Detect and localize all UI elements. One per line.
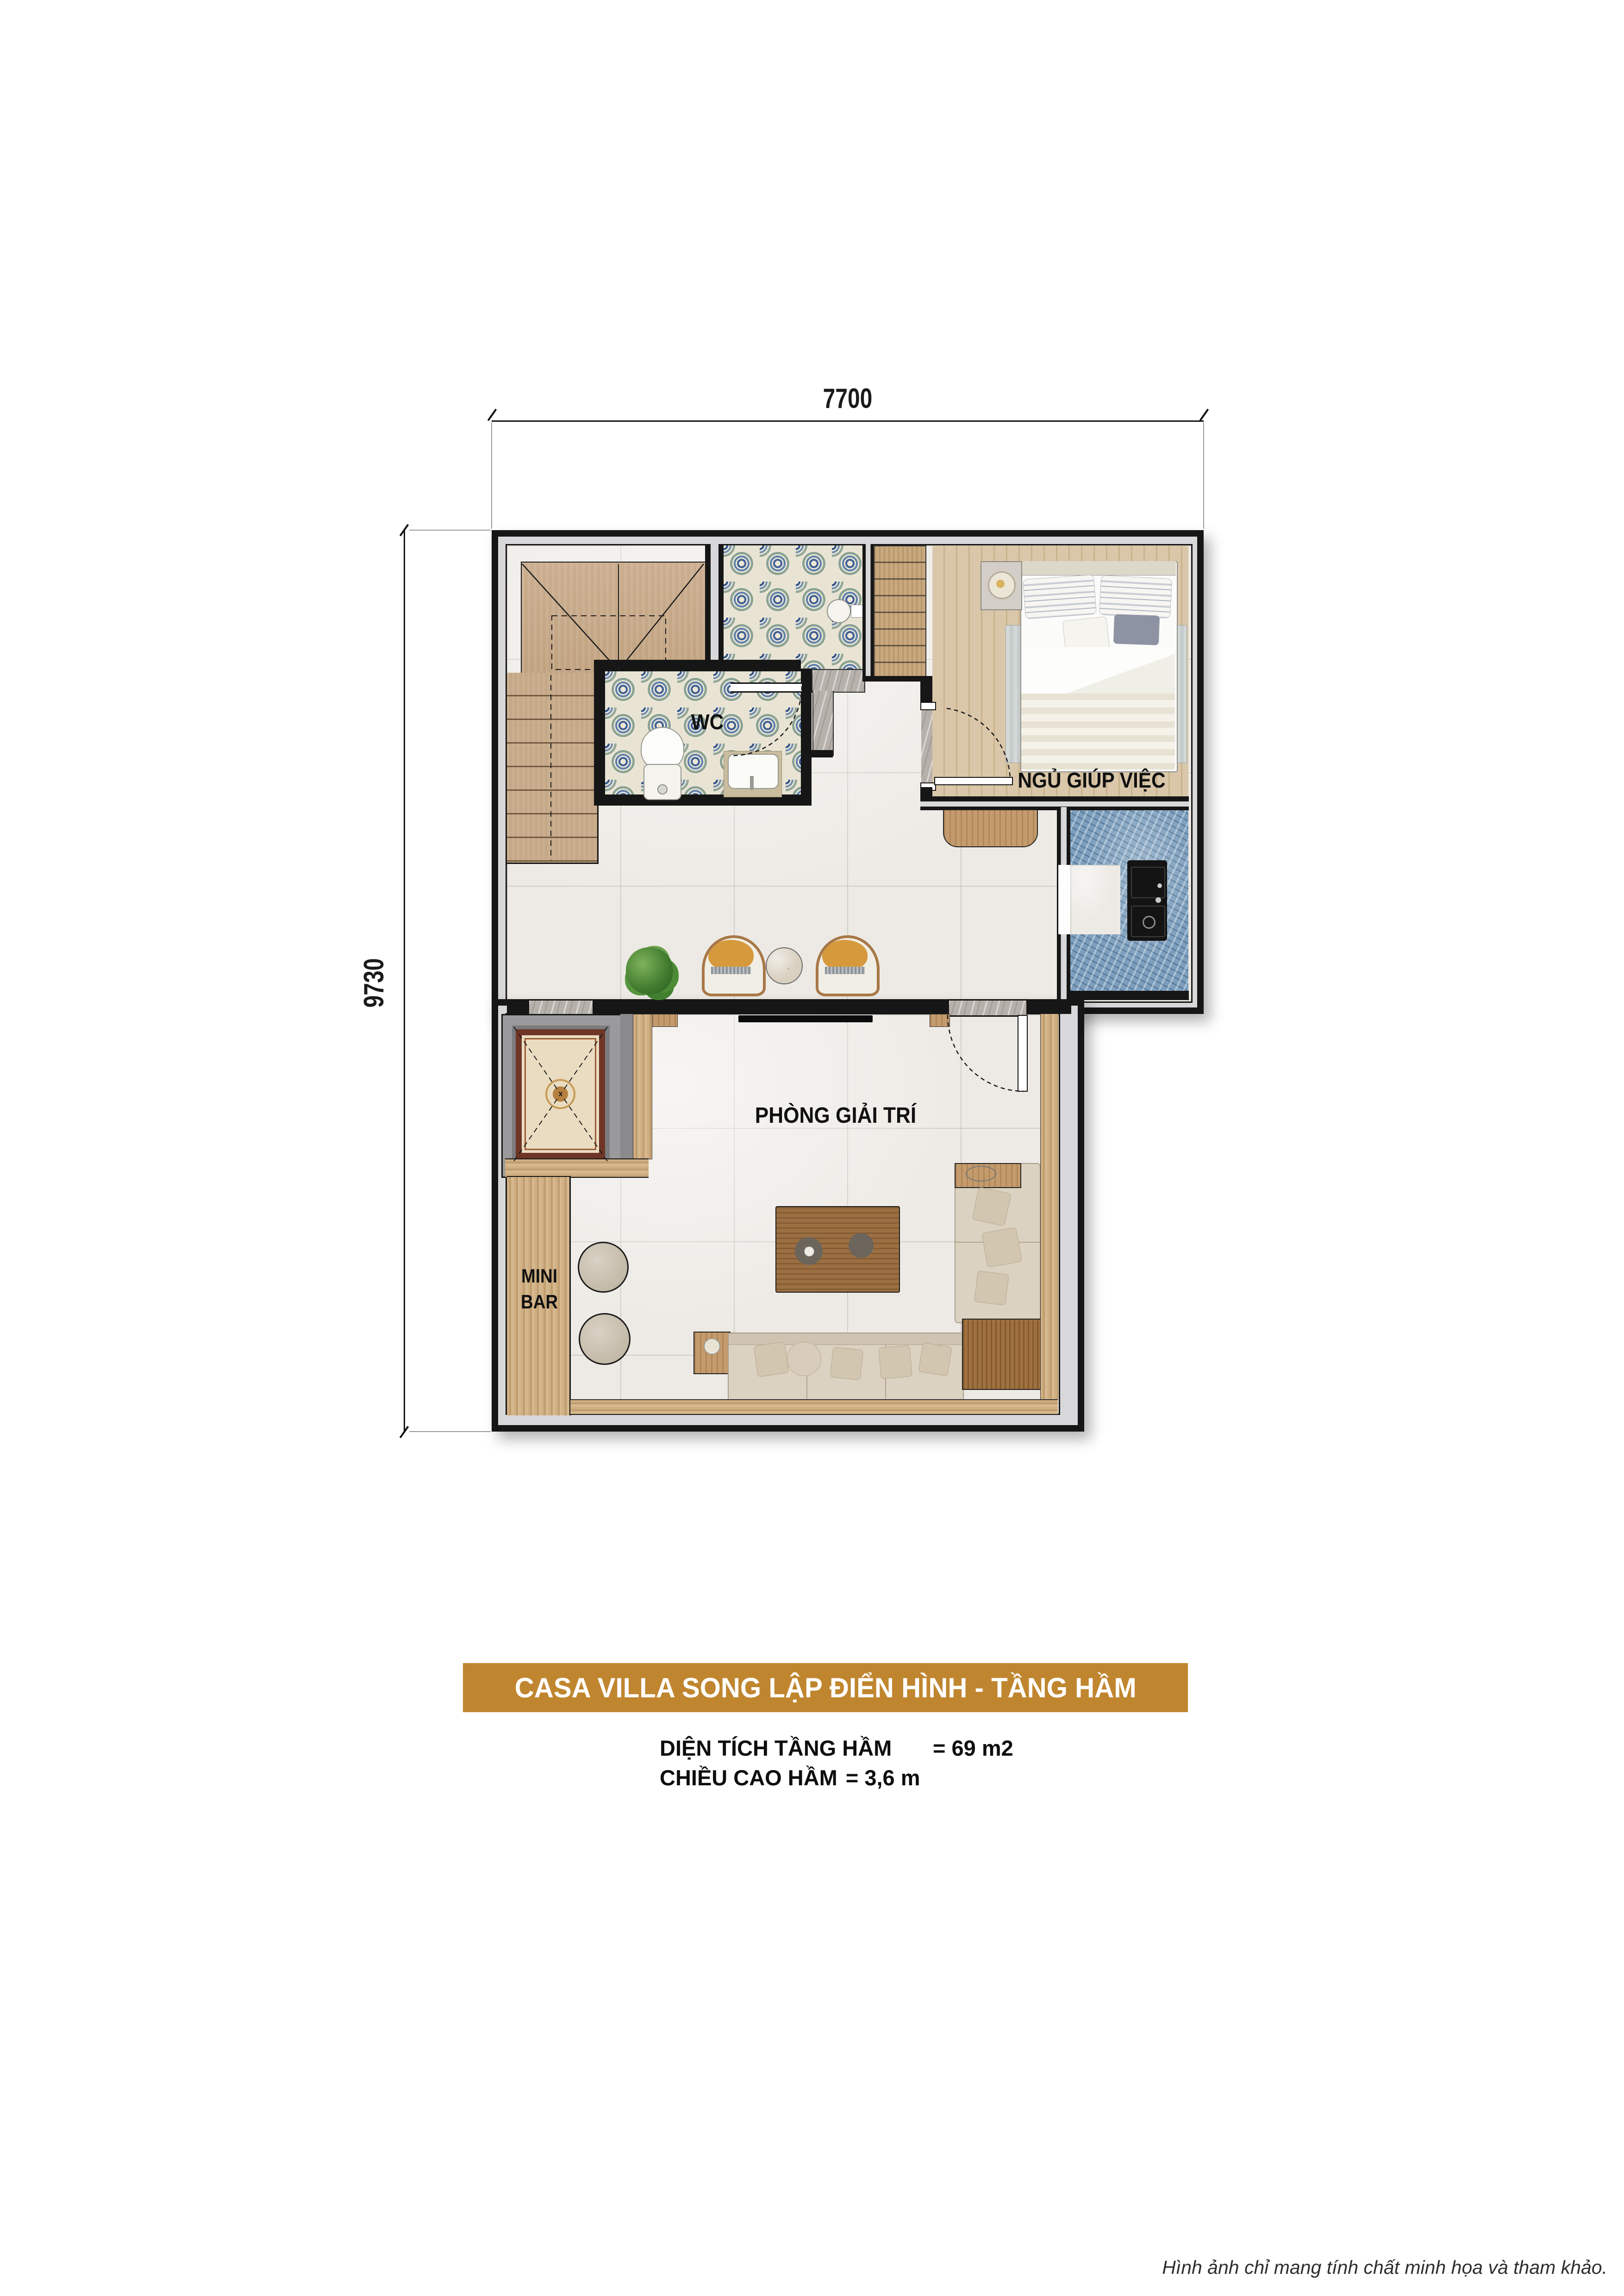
door-stop — [920, 702, 936, 710]
corner-table — [962, 1319, 1042, 1390]
spec-height-label: CHIỀU CAO HẦM — [660, 1765, 837, 1790]
sofa-pillow — [972, 1187, 1011, 1226]
dimension-tick — [1199, 409, 1209, 421]
middle-wall-seg — [593, 999, 949, 1014]
tv — [738, 1015, 873, 1022]
dimension-height-line — [404, 530, 405, 1432]
laundry-left-wall-upper — [1057, 807, 1070, 865]
potted-plant — [626, 947, 673, 995]
service-niche-band — [812, 669, 865, 693]
wall-panel-right — [1040, 1014, 1058, 1399]
service-niche-cap — [812, 750, 833, 757]
bedroom-door-threshold — [921, 707, 932, 787]
tv-wall-shelf — [652, 1014, 678, 1027]
toilet-tank — [643, 764, 681, 800]
bed-blanket — [1021, 694, 1175, 770]
table-lamp-bulb — [996, 580, 1005, 588]
wall-basin — [827, 599, 851, 623]
disclaimer-note: Hình ảnh chỉ mang tính chất minh họa và … — [1162, 2257, 1607, 2278]
sink-faucet-dot — [1156, 897, 1161, 903]
minibar-label-line2: BAR — [512, 1289, 567, 1315]
entertainment-door-leaf — [1018, 1015, 1028, 1092]
title-banner: CASA VILLA SONG LẬP ĐIỂN HÌNH - TẦNG HẦM — [463, 1663, 1188, 1712]
bar-stool — [578, 1242, 629, 1293]
sink-drain — [1143, 916, 1156, 929]
dimension-tick — [487, 409, 497, 421]
spec-area-value: = 69 m2 — [933, 1735, 1013, 1761]
dimension-height-label: 9730 — [358, 909, 390, 1057]
bed-headboard — [1020, 561, 1176, 576]
title-banner-text: CASA VILLA SONG LẬP ĐIỂN HÌNH - TẦNG HẦM — [515, 1672, 1137, 1704]
laundry-left-wall-lower — [1057, 934, 1070, 1000]
wc-faucet — [750, 776, 754, 790]
elevator-sill-panel — [505, 1158, 649, 1178]
stair-landing — [521, 562, 707, 675]
wc-label: WC — [665, 709, 750, 734]
minibar-label-line1: MINI — [512, 1263, 567, 1289]
wall-basin-bracket — [851, 605, 864, 618]
wall-panel-bottom — [570, 1399, 1058, 1414]
bed-pillow — [1023, 575, 1097, 619]
bedroom-wardrobe — [874, 545, 926, 678]
tv-wall-shelf — [930, 1014, 950, 1027]
spec-height-value: = 3,6 m — [846, 1765, 920, 1790]
page: 7700 9730 WC — [0, 0, 1624, 2296]
sofa-pillow — [754, 1342, 789, 1377]
bed-duvet — [1021, 647, 1175, 698]
middle-wall-seg — [1026, 999, 1071, 1014]
laundry-bottom-wall — [1070, 991, 1189, 1000]
bar-stool — [579, 1313, 631, 1365]
accent-chair-cushion — [708, 940, 754, 970]
sofa-pillow — [981, 1227, 1022, 1268]
cup — [804, 1246, 814, 1257]
bed-pillow — [1099, 575, 1172, 619]
extension-line — [409, 1431, 491, 1432]
toilet-flush-button — [657, 784, 668, 795]
sofa-pillow — [918, 1342, 952, 1376]
sofa-pillow — [830, 1347, 864, 1381]
bed-pillow-accent — [1113, 614, 1160, 645]
sofa-lamp — [704, 1338, 720, 1355]
bedroom-door-leaf — [934, 777, 1013, 785]
elevator-side-panel — [633, 1014, 652, 1159]
accent-chair-cushion — [822, 940, 868, 970]
extension-line — [1203, 422, 1204, 529]
hall-side-table — [766, 947, 803, 984]
accent-chair-fringe — [825, 967, 865, 974]
wc-right-wall — [801, 669, 812, 806]
minibar-label: MINI BAR — [512, 1263, 567, 1315]
spec-area-label: DIỆN TÍCH TẦNG HẦM — [660, 1735, 933, 1761]
entertainment-door-sill — [949, 999, 1026, 1017]
dimension-width-line — [492, 420, 1204, 422]
spec-area-row: DIỆN TÍCH TẦNG HẦM = 69 m2 — [660, 1735, 1013, 1761]
wc-door-sill — [731, 682, 802, 693]
extension-line — [409, 530, 491, 531]
sofa-pillow — [974, 1270, 1009, 1306]
coffee-table — [775, 1206, 900, 1293]
sofa-pillow — [878, 1345, 912, 1379]
bedroom-partition-wall — [862, 544, 874, 678]
elevator-rug — [516, 1029, 605, 1159]
wc-top-wall — [594, 660, 801, 671]
laundry-entry-tile — [1070, 865, 1120, 934]
extension-line — [491, 422, 492, 529]
maid-room-label: NGỦ GIÚP VIỆC — [1006, 768, 1177, 793]
sink-faucet-dot — [1157, 883, 1162, 888]
hall-desk — [943, 809, 1038, 847]
dimension-width-label: 7700 — [774, 382, 922, 415]
entertainment-label: PHÒNG GIẢI TRÍ — [729, 1103, 942, 1128]
stair-steps — [507, 673, 599, 864]
sofa-round-pillow — [787, 1342, 821, 1376]
elevator-rug-inner — [525, 1038, 596, 1150]
placemat — [849, 1233, 874, 1258]
spec-height-row: CHIỀU CAO HẦM = 3,6 m — [660, 1765, 920, 1790]
service-niche — [812, 691, 834, 756]
elevator-wall-right — [620, 1014, 633, 1158]
console-tray — [966, 1166, 996, 1182]
middle-wall-seg — [507, 999, 529, 1014]
bedroom-south-wall — [920, 796, 1189, 810]
black-sink-bowl-upper — [1131, 867, 1165, 898]
stair-partition-wall — [705, 544, 724, 674]
accent-chair-fringe — [711, 967, 751, 974]
wc-left-wall — [594, 660, 605, 806]
